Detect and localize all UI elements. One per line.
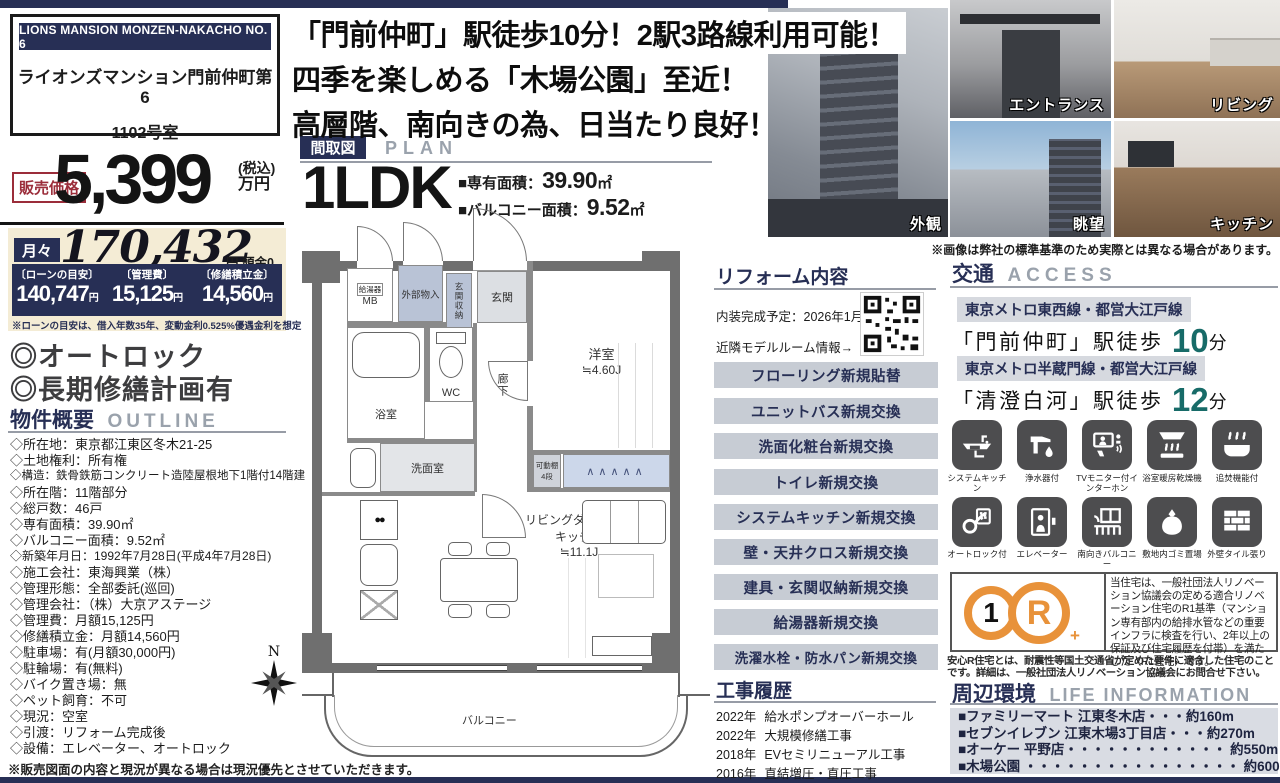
equipment-label: 浴室暖房乾燥機 bbox=[1139, 473, 1205, 483]
balcony-label: バルコニー bbox=[462, 712, 517, 728]
equipment-label: TVモニター付インターホン bbox=[1074, 473, 1140, 493]
flyer-page: LIONS MANSION MONZEN-NAKACHO NO. 6 ライオンズ… bbox=[0, 0, 1280, 783]
construction-underline bbox=[714, 701, 936, 703]
equipment-label: エレベーター bbox=[1009, 549, 1075, 559]
elevator-icon bbox=[1017, 497, 1067, 547]
photo-caption: 外観 bbox=[910, 213, 942, 234]
washroom-room: 洗面室 bbox=[380, 443, 475, 492]
loan-estimate-head: 〔ローンの目安〕 bbox=[12, 267, 102, 282]
bathroom-dryer-icon bbox=[1147, 420, 1197, 470]
access-underline bbox=[950, 286, 1278, 288]
equipment-label: 追焚機能付 bbox=[1204, 473, 1270, 483]
floor-plan: 給湯器 MB 外部物入 玄関収納 玄関 洋室 ≒4.60J 浴室 WC 洗面室 … bbox=[302, 228, 710, 762]
compass: N bbox=[248, 644, 300, 711]
exclusive-area: ■専有面積：39.90㎡ bbox=[458, 167, 612, 194]
outline-title-jp: 物件概要 bbox=[10, 409, 94, 432]
top-border-strip bbox=[0, 0, 788, 8]
system-kitchen-icon bbox=[952, 420, 1002, 470]
life-title-en: LIFE INFORMATION bbox=[1049, 685, 1251, 705]
reform-item-button: 壁・天井クロス新規交換 bbox=[714, 539, 938, 565]
door-arc bbox=[357, 226, 393, 262]
repair-fund-head: 〔修繕積立金〕 bbox=[192, 267, 282, 282]
interior-wall bbox=[322, 492, 475, 496]
bath-label: 浴室 bbox=[375, 406, 397, 422]
exterior-storage-label: 外部物入 bbox=[401, 287, 439, 301]
dining-chair bbox=[486, 604, 510, 618]
management-fee-head: 〔管理費〕 bbox=[102, 267, 192, 282]
dining-chair bbox=[486, 542, 510, 556]
reform-item-button: 洗面化粧台新規交換 bbox=[714, 433, 938, 459]
reform-item-button: ユニットバス新規交換 bbox=[714, 398, 938, 424]
outline-item: ◇管理会社：（株）大京アステージ bbox=[10, 597, 211, 612]
stove: ●● bbox=[360, 500, 398, 540]
movable-shelf: 可動棚 4段 bbox=[533, 454, 561, 488]
outline-item: ◇バルコニー面積：9.52㎡ bbox=[10, 533, 165, 548]
kitchen-sink bbox=[360, 544, 398, 586]
bathtub bbox=[352, 332, 420, 378]
photo-entrance: エントランス bbox=[950, 0, 1111, 118]
life-item: ■セブンイレブン 江東木場3丁目店・・・約270m bbox=[958, 726, 1270, 743]
balcony-tie bbox=[332, 673, 334, 697]
headline-line1: 「門前仲町」駅徒歩10分！2駅3路線利用可能！ bbox=[292, 12, 906, 54]
auto-lock-icon bbox=[952, 497, 1002, 547]
closet: ∧∧∧∧∧ bbox=[563, 454, 670, 488]
photo-caption: 眺望 bbox=[1073, 213, 1105, 234]
access-header: 交通 ACCESS bbox=[952, 258, 1117, 288]
entrance-storage-room: 玄関収納 bbox=[446, 273, 472, 329]
exterior-storage-room: 外部物入 bbox=[398, 265, 443, 322]
life-underline bbox=[950, 703, 1278, 705]
loan-estimate-value: 140,747円 bbox=[12, 282, 102, 311]
layout-type: 1LDK bbox=[302, 158, 451, 218]
washbasin bbox=[350, 448, 376, 488]
sofa bbox=[582, 500, 666, 544]
washroom-label: 洗面室 bbox=[411, 460, 444, 476]
photo-caption: エントランス bbox=[1009, 94, 1105, 115]
wall bbox=[312, 261, 322, 673]
ldk-sketch bbox=[552, 558, 592, 658]
outline-item: ◇修繕積立金：月額14,560円 bbox=[10, 629, 180, 644]
outline-item: ◇管理費：月額15,125円 bbox=[10, 613, 154, 628]
photo-living: リビング bbox=[1114, 0, 1280, 118]
outline-item: ◇駐輪場：有(無料) bbox=[10, 661, 123, 676]
water-heater-label: 給湯器 bbox=[357, 283, 384, 296]
outline-item: ◇設備：エレベーター、オートロック bbox=[10, 741, 231, 756]
kitchen-shelf bbox=[360, 590, 398, 620]
photo-kitchen: キッチン bbox=[1114, 121, 1280, 237]
price-unit: 万円 bbox=[238, 176, 270, 193]
outline-item: ◇専有面積：39.90㎡ bbox=[10, 517, 134, 532]
station-walk-2: 「清澄白河」駅徒歩 12分 bbox=[952, 381, 1229, 419]
reform-title: リフォーム内容 bbox=[716, 262, 848, 289]
tv-intercom-icon bbox=[1082, 420, 1132, 470]
door-arc bbox=[403, 222, 443, 262]
station-walk-1: 「門前仲町」駅徒歩 10分 bbox=[952, 322, 1229, 360]
r1-badge-letter-circle: R bbox=[1008, 582, 1070, 644]
photo-caption: リビング bbox=[1210, 94, 1274, 115]
property-name-box: LIONS MANSION MONZEN-NAKACHO NO. 6 ライオンズ… bbox=[10, 14, 280, 136]
reform-item-button: システムキッチン新規交換 bbox=[714, 504, 938, 530]
construction-title: 工事履歴 bbox=[716, 676, 792, 703]
reform-item-button: 建具・玄関収納新規交換 bbox=[714, 574, 938, 600]
mb-label: MB bbox=[363, 296, 378, 307]
life-item: ■木場公園 ・・・・・・・・・・・・・・・・ 約600m bbox=[958, 759, 1270, 776]
reform-item-button: 洗濯水栓・防水パン新規交換 bbox=[714, 644, 938, 670]
wall bbox=[670, 261, 680, 673]
construction-row: 2018年EVセミリニューアル工事 bbox=[716, 744, 905, 763]
management-fee-value: 15,125円 bbox=[102, 282, 192, 311]
construction-row: 2022年大規模修繕工事 bbox=[716, 725, 852, 744]
wall-corner bbox=[302, 633, 332, 673]
headline-line2: 四季を楽しめる「木場公園」至近！ bbox=[292, 57, 748, 99]
compass-n-label: N bbox=[248, 644, 300, 660]
dining-table bbox=[440, 558, 518, 602]
construction-row: 2022年給水ポンプオーバーホール bbox=[716, 706, 914, 725]
reform-model-room: 近隣モデルルーム情報→ bbox=[716, 337, 853, 356]
train-line-1: 東京メトロ東西線・都営大江戸線 bbox=[957, 297, 1191, 322]
tv-board bbox=[592, 636, 652, 656]
reform-item-button: トイレ新規交換 bbox=[714, 469, 938, 495]
reform-item-button: フローリング新規貼替 bbox=[714, 362, 938, 388]
loan-estimate-col: 〔ローンの目安〕 140,747円 bbox=[12, 264, 102, 316]
equipment-label: 敷地内ゴミ置場 bbox=[1139, 549, 1205, 559]
property-name-jp: ライオンズマンション門前仲町第6 bbox=[13, 63, 277, 108]
kitchen-counter-shape bbox=[1210, 38, 1280, 66]
tile-wall-icon bbox=[1212, 497, 1262, 547]
equipment-label: 南向きバルコニー bbox=[1074, 549, 1140, 569]
wc-label: WC bbox=[442, 387, 460, 399]
wall-corner bbox=[652, 633, 680, 673]
r1-certification-box: 1 R + 当住宅は、一般社団法人リノベーション協議会の定める適合リノベーション… bbox=[950, 572, 1278, 652]
outline-header: 物件概要 OUTLINE bbox=[10, 404, 219, 434]
reheating-bath-icon bbox=[1212, 420, 1262, 470]
price-tax: (税込) bbox=[238, 160, 275, 176]
equipment-label: 外壁タイル張り bbox=[1204, 549, 1270, 559]
toilet-tank bbox=[436, 332, 466, 344]
ldk-furniture bbox=[598, 554, 654, 598]
loan-note: ※ローンの目安は、借入年数35年、変動金利0.525%優遇金利を想定 bbox=[12, 318, 301, 332]
outline-item: ◇ペット飼育：不可 bbox=[10, 693, 127, 708]
dining-chair bbox=[448, 604, 472, 618]
headline-line3: 高層階、南向きの為、日当たり良好！ bbox=[292, 102, 777, 144]
life-item: ■オーケー 平野店・・・・・・・・・・・・ 約550m bbox=[958, 742, 1270, 759]
window bbox=[537, 665, 642, 671]
window bbox=[377, 665, 507, 671]
price-tax-unit: (税込) 万円 bbox=[238, 160, 275, 193]
wall-corner bbox=[302, 251, 340, 283]
equipment-label: システムキッチン bbox=[944, 473, 1010, 493]
qr-code-icon bbox=[860, 292, 924, 356]
toilet-bowl bbox=[439, 346, 463, 378]
door-gap bbox=[473, 261, 527, 271]
bedroom-furniture-sketch bbox=[602, 343, 664, 448]
outline-item: ◇施工会社：東海興業（株） bbox=[10, 565, 179, 580]
monthly-label: 月々 bbox=[14, 238, 60, 262]
life-item: ■ファミリーマート 江東冬木店・・・約160m bbox=[958, 709, 1270, 726]
outline-item: ◇駐車場：有(月額30,000円) bbox=[10, 645, 175, 660]
monthly-payment-box: 月々 170,432 円 頭金0円 〔ローンの目安〕 140,747円 〔管理費… bbox=[8, 228, 286, 331]
dining-chair bbox=[448, 542, 472, 556]
access-title-jp: 交通 bbox=[952, 263, 994, 286]
entrance-storage-label: 玄関収納 bbox=[453, 282, 465, 320]
south-balcony-icon bbox=[1082, 497, 1132, 547]
photo-note: ※画像は弊社の標準基準のため実際とは異なる場合があります。 bbox=[700, 241, 1278, 258]
outline-item: ◇土地権利：所有権 bbox=[10, 453, 127, 468]
reform-item-button: 給湯器新規交換 bbox=[714, 609, 938, 635]
access-title-en: ACCESS bbox=[1007, 265, 1116, 286]
reform-completion: 内装完成予定：2026年1月頃 bbox=[716, 306, 876, 325]
r1-sparkle: + bbox=[1070, 626, 1080, 646]
hanger-marks: ∧∧∧∧∧ bbox=[586, 465, 646, 478]
outline-item: ◇バイク置き場：無 bbox=[10, 677, 127, 692]
life-info-box: ■ファミリーマート 江東冬木店・・・約160m ■セブンイレブン 江東木場3丁目… bbox=[950, 708, 1278, 774]
outline-item: ◇現況：空室 bbox=[10, 709, 88, 724]
price-value: 5,399 bbox=[54, 144, 209, 214]
outline-item: ◇管理形態：全部委託(巡回) bbox=[10, 581, 175, 596]
photo-view: 眺望 bbox=[950, 121, 1111, 237]
train-line-2: 東京メトロ半蔵門線・都営大江戸線 bbox=[957, 356, 1205, 381]
range-hood-shape bbox=[1128, 141, 1174, 167]
interior-wall bbox=[533, 488, 670, 492]
reform-underline bbox=[714, 288, 936, 290]
management-fee-col: 〔管理費〕 15,125円 bbox=[102, 264, 192, 316]
repair-fund-value: 14,560円 bbox=[192, 282, 282, 311]
entrance-room: 玄関 bbox=[477, 271, 527, 323]
feature-repair-plan: ◎長期修繕計画有 bbox=[10, 368, 234, 407]
entrance-label: 玄関 bbox=[491, 289, 513, 305]
repair-fund-col: 〔修繕積立金〕 14,560円 bbox=[192, 264, 282, 316]
photo-caption: キッチン bbox=[1210, 213, 1274, 234]
entrance-canopy-shape bbox=[960, 14, 1100, 24]
outline-item: ◇所在地：東京都江東区冬木21-25 bbox=[10, 437, 212, 452]
compass-star-icon bbox=[251, 660, 297, 706]
outline-title-en: OUTLINE bbox=[107, 411, 218, 432]
outline-item: ◇新築年月日：1992年7月28日(平成4年7月28日) bbox=[10, 549, 271, 564]
outline-item: ◇引渡：リフォーム完成後 bbox=[10, 725, 166, 740]
garbage-area-icon bbox=[1147, 497, 1197, 547]
r1-description: 当住宅は、一般社団法人リノベーション協議会の定める適合リノベーション住宅のR1基… bbox=[1104, 574, 1276, 650]
outline-underline bbox=[8, 431, 286, 433]
meter-box-room: 給湯器 MB bbox=[347, 268, 393, 322]
outline-item: ◇総戸数：46戸 bbox=[10, 501, 102, 516]
equipment-label: オートロック付 bbox=[944, 549, 1010, 559]
outline-item: ◇所在階：11階部分 bbox=[10, 485, 128, 500]
property-name-en: LIONS MANSION MONZEN-NAKACHO NO. 6 bbox=[19, 23, 271, 50]
loan-breakdown-box: 〔ローンの目安〕 140,747円 〔管理費〕 15,125円 〔修繕積立金〕 … bbox=[12, 264, 282, 316]
construction-row: 2016年直結増圧・直圧工事 bbox=[716, 763, 877, 782]
water-purifier-icon bbox=[1017, 420, 1067, 470]
outline-item: ◇構造：鉄骨鉄筋コンクリート造陸屋根地下1階付14階建 bbox=[10, 469, 305, 484]
equipment-label: 浄水器付 bbox=[1009, 473, 1075, 483]
